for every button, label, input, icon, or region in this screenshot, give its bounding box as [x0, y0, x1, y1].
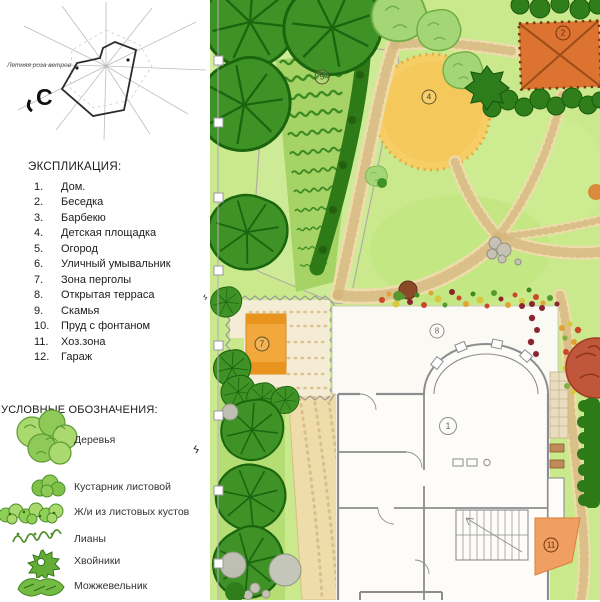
north-arrow-stroke [28, 100, 32, 111]
explication-item: 9.Скамья [0, 303, 212, 319]
explication-item: 4.Детская площадка [0, 226, 212, 242]
symbol-label-shrub: Кустарник листовой [74, 481, 171, 493]
north-indicator: С [36, 84, 53, 110]
tiled-walk [550, 372, 568, 438]
explication-item: 5.Огород [0, 241, 212, 257]
explication-item: 11.Хоз.зона [0, 334, 212, 350]
plan-marker-terrace: 8 [430, 324, 445, 339]
explication-item: 6.Уличный умывальник [0, 257, 212, 273]
garden-plan: 5 4 2 7 8 1 11 [210, 0, 600, 600]
symbol-label-juniper: Можжевельник [74, 580, 147, 592]
symbol-label-liana: Лианы [74, 533, 106, 545]
plan-marker-gazebo: 2 [556, 26, 571, 41]
plan-marker-utility-zone: 11 [544, 538, 559, 553]
explication-item: 3.Барбекю [0, 210, 212, 226]
plan-marker-vegetable-garden: 5 [315, 70, 330, 85]
tree-icon [10, 406, 84, 472]
wind-rose: Летняя роза ветров С [0, 0, 210, 150]
liana-icon [10, 528, 70, 548]
explication-item: 12.Гараж [0, 350, 212, 366]
plan-marker-house: 1 [439, 417, 457, 435]
juniper-icon [14, 574, 72, 602]
leafy-shrub-icon [28, 474, 70, 500]
explication-list: 1.Дом. 2.Беседка 3.Барбекю 4.Детская пло… [0, 179, 212, 365]
gate-mark: ϟ [192, 444, 200, 457]
explication-item: 1.Дом. [0, 179, 212, 195]
garden-plan-svg [210, 0, 600, 600]
explication-item: 10.Пруд с фонтаном [0, 319, 212, 335]
leafy-hedge-icon [0, 500, 66, 530]
explication-item: 8.Открытая терраса [0, 288, 212, 304]
rose-dot [126, 58, 129, 61]
plan-marker-playground: 4 [422, 90, 437, 105]
site-boundary-outline [62, 42, 136, 116]
explication-title: ЭКСПЛИКАЦИЯ: [28, 161, 121, 173]
symbol-label-trees: Деревья [74, 434, 115, 446]
symbol-label-hedge: Ж/и из листовых кустов [74, 506, 189, 518]
landscape-plan-page: Летняя роза ветров С ЭКСПЛИКАЦИЯ: 1.Дом.… [0, 0, 600, 600]
symbol-label-conifer: Хвойники [74, 555, 120, 567]
plan-marker-pergola: 7 [255, 337, 270, 352]
wind-rose-label: Летняя роза ветров [6, 62, 72, 69]
explication-item: 7.Зона перголы [0, 272, 212, 288]
explication-item: 2.Беседка [0, 195, 212, 211]
rose-dot [75, 66, 78, 69]
